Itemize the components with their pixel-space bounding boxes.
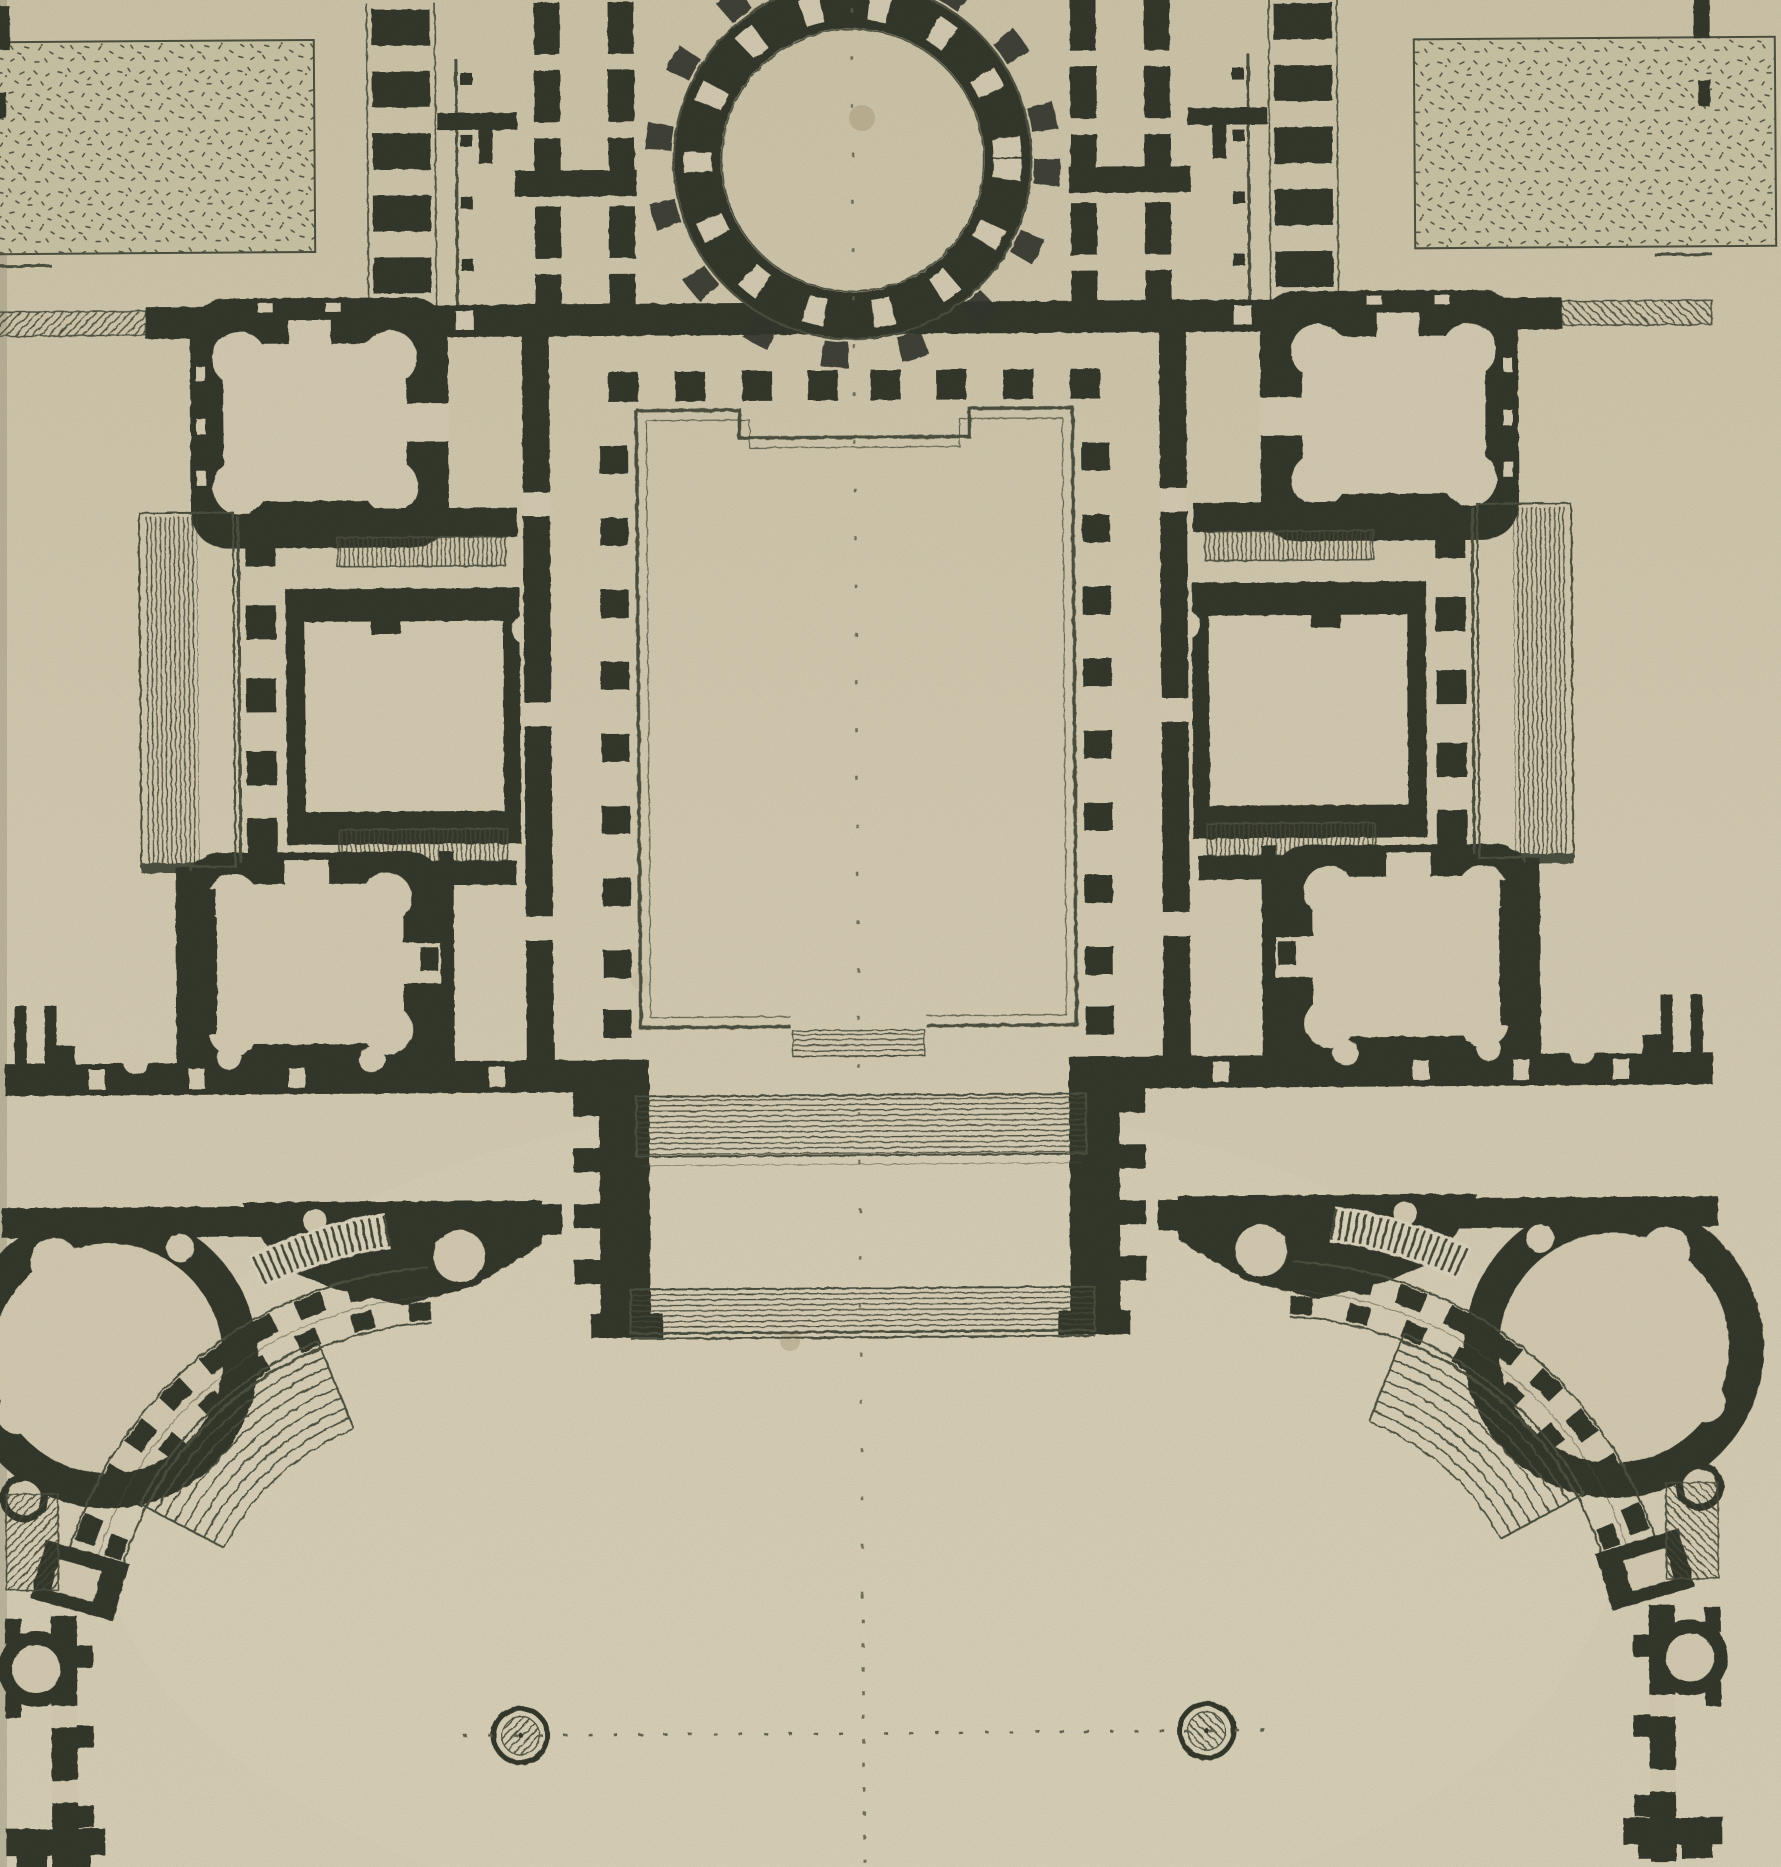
etching-page	[0, 0, 1781, 1867]
paper-grain	[0, 0, 1781, 1867]
floor-plan-svg	[0, 0, 1781, 1867]
